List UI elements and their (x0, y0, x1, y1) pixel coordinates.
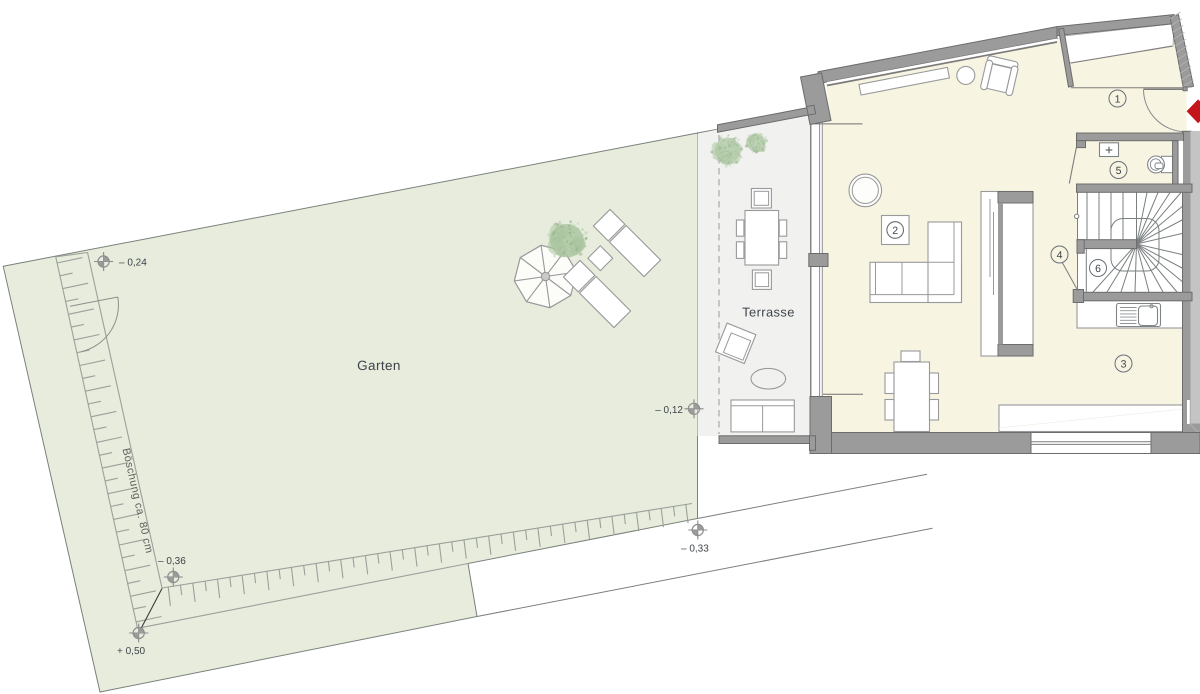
svg-text:4: 4 (1057, 249, 1063, 261)
svg-text:2: 2 (892, 225, 898, 237)
svg-text:Terrasse: Terrasse (742, 305, 795, 320)
svg-text:3: 3 (1121, 358, 1127, 370)
svg-text:Garten: Garten (357, 358, 401, 373)
svg-text:– 0,36: – 0,36 (158, 556, 186, 567)
svg-text:– 0,33: – 0,33 (681, 544, 709, 555)
svg-text:1: 1 (1115, 93, 1121, 105)
svg-text:5: 5 (1116, 165, 1122, 177)
svg-text:– 0,12: – 0,12 (655, 405, 683, 416)
svg-text:+ 0,50: + 0,50 (117, 646, 146, 657)
svg-text:6: 6 (1095, 263, 1101, 275)
svg-text:– 0,24: – 0,24 (119, 258, 147, 269)
